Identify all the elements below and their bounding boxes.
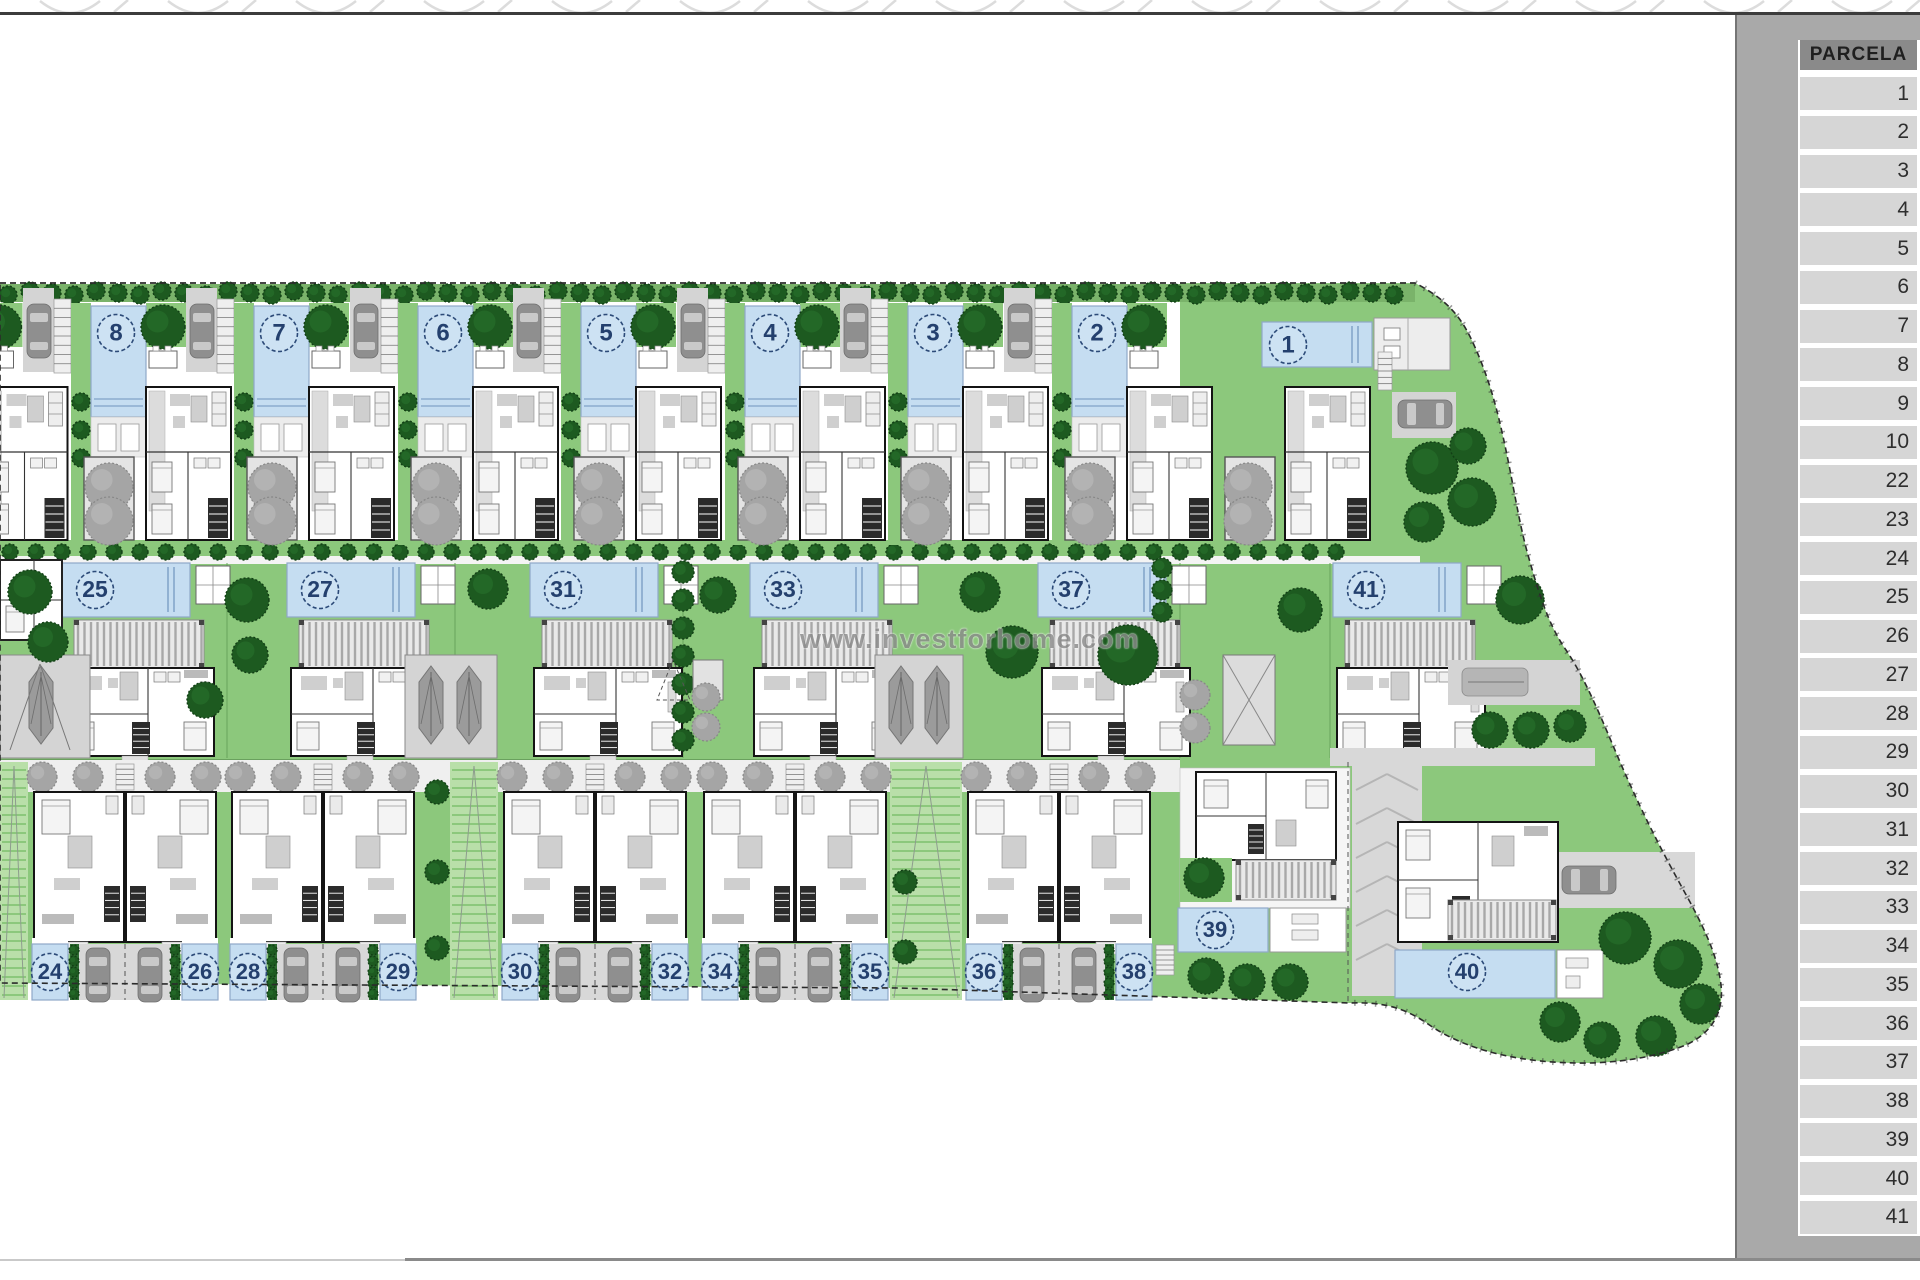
- tree-icon: [840, 945, 850, 955]
- tree-icon: [539, 967, 549, 977]
- parcela-row[interactable]: 30: [1800, 775, 1917, 808]
- tree-icon: [439, 284, 457, 302]
- tree-icon: [879, 282, 897, 300]
- villa-number-label: 33: [770, 576, 796, 602]
- parcela-row[interactable]: 6: [1800, 271, 1917, 304]
- tree-icon: [1341, 282, 1359, 300]
- parcela-row[interactable]: 23: [1800, 503, 1917, 536]
- tree-icon: [1152, 558, 1172, 578]
- tree-icon: [72, 421, 90, 439]
- stairs-icon: [1378, 352, 1392, 390]
- parcela-row[interactable]: 32: [1800, 852, 1917, 885]
- gray-tree-icon: [225, 762, 255, 792]
- boat-trailer-icon: [889, 666, 913, 744]
- car-icon: [808, 948, 832, 1002]
- tree-icon: [1680, 984, 1720, 1024]
- villa-number-label: 1: [1281, 331, 1294, 358]
- tree-icon: [672, 617, 694, 639]
- gray-tree-icon: [861, 762, 891, 792]
- tree-icon: [1275, 282, 1293, 300]
- parcela-row[interactable]: 22: [1800, 465, 1917, 498]
- parcela-row[interactable]: 41: [1800, 1201, 1917, 1234]
- tree-icon: [615, 282, 633, 300]
- tree-icon: [263, 286, 281, 304]
- gray-tree-icon: [1180, 713, 1210, 743]
- tree-icon: [938, 544, 954, 560]
- parcela-row[interactable]: 39: [1800, 1123, 1917, 1156]
- duplex-floorplan: [504, 792, 686, 942]
- tree-icon: [1654, 940, 1702, 988]
- villa-number-label: 36: [972, 959, 996, 984]
- tree-icon: [549, 282, 567, 300]
- tree-icon: [1187, 286, 1205, 304]
- tree-icon: [1363, 284, 1381, 302]
- parcela-row[interactable]: 24: [1800, 542, 1917, 575]
- watermark-text: www.investforhome.com: [800, 624, 1120, 655]
- car-icon: [1562, 866, 1616, 894]
- villa-number-label: 32: [658, 959, 682, 984]
- tree-icon: [1540, 1002, 1580, 1042]
- tree-icon: [153, 282, 171, 300]
- tree-icon: [964, 544, 980, 560]
- pergola-deck: [74, 620, 204, 668]
- parcela-row[interactable]: 3: [1800, 155, 1917, 188]
- car-icon: [27, 304, 51, 358]
- tree-icon: [631, 305, 675, 349]
- villa-number-badge: 4: [752, 315, 789, 352]
- tree-icon: [1448, 478, 1496, 526]
- tree-icon: [132, 544, 148, 560]
- villa-number-badge: 34: [702, 954, 739, 991]
- parcela-row[interactable]: 5: [1800, 232, 1917, 265]
- green-walkway-ramp: [450, 762, 498, 1000]
- tree-icon: [1224, 544, 1240, 560]
- tree-icon: [539, 945, 549, 955]
- duplex-plot: 2829: [225, 762, 419, 1002]
- tree-icon: [232, 637, 268, 673]
- tree-icon: [69, 945, 79, 955]
- tree-icon: [1143, 282, 1161, 300]
- tree-icon: [672, 589, 694, 611]
- car-icon: [284, 948, 308, 1002]
- parcela-header-cell: PARCELA: [1800, 40, 1917, 70]
- gray-tree-icon: [615, 762, 645, 792]
- boat-trailer-icon: [29, 666, 53, 744]
- parcela-row[interactable]: 38: [1800, 1085, 1917, 1118]
- tree-icon: [1016, 544, 1032, 560]
- villa-number-badge: 40: [1449, 954, 1486, 991]
- gray-tree-icon: [743, 762, 773, 792]
- tree-icon: [54, 544, 70, 560]
- tree-icon: [626, 544, 642, 560]
- tree-icon: [1055, 286, 1073, 304]
- tree-icon: [170, 967, 180, 977]
- tree-icon: [399, 421, 417, 439]
- gray-tree-icon: [543, 762, 573, 792]
- duplex-floorplan: [34, 792, 216, 942]
- tree-icon: [1229, 964, 1265, 1000]
- tree-icon: [739, 967, 749, 977]
- page: 8765432125273133374124262829303234353638…: [0, 0, 1920, 1280]
- tree-icon: [1152, 602, 1172, 622]
- gray-tree-icon: [692, 713, 720, 741]
- parcela-panel: PARCELA 12345678910222324252627282930313…: [1735, 13, 1920, 1258]
- tree-icon: [1003, 945, 1013, 955]
- parcela-row[interactable]: 33: [1800, 891, 1917, 924]
- gray-tree-icon: [961, 762, 991, 792]
- tree-icon: [739, 989, 749, 999]
- tree-icon: [496, 544, 512, 560]
- villa-number-badge: 37: [1053, 572, 1090, 609]
- tree-icon: [80, 544, 96, 560]
- tree-icon: [1276, 544, 1292, 560]
- tree-icon: [285, 282, 303, 300]
- house-floorplan: [800, 387, 885, 540]
- villa-number-badge: 27: [302, 572, 339, 609]
- tree-icon: [340, 544, 356, 560]
- tree-icon: [483, 282, 501, 300]
- tree-icon: [640, 967, 650, 977]
- tree-icon: [1472, 712, 1508, 748]
- tree-icon: [392, 544, 408, 560]
- tree-icon: [329, 286, 347, 304]
- gray-tree-icon: [739, 497, 787, 545]
- parcela-row[interactable]: 8: [1800, 348, 1917, 381]
- tree-icon: [1554, 710, 1586, 742]
- tree-icon: [399, 393, 417, 411]
- tree-icon: [539, 956, 549, 966]
- tree-icon: [1003, 967, 1013, 977]
- tree-icon: [418, 544, 434, 560]
- tree-icon: [889, 393, 907, 411]
- villa-number-badge: 33: [765, 572, 802, 609]
- tree-icon: [235, 393, 253, 411]
- parcela-row[interactable]: 26: [1800, 620, 1917, 653]
- parcela-row[interactable]: 29: [1800, 736, 1917, 769]
- gray-tree-icon: [191, 762, 221, 792]
- tree-icon: [288, 544, 304, 560]
- tree-icon: [672, 729, 694, 751]
- villa-number-badge: 8: [98, 315, 135, 352]
- tree-icon: [158, 544, 174, 560]
- tree-icon: [967, 284, 985, 302]
- villa-number-label: 4: [763, 319, 777, 346]
- tree-icon: [1053, 393, 1071, 411]
- stairs-icon: [786, 764, 804, 790]
- tree-icon: [8, 570, 52, 614]
- tree-icon: [267, 956, 277, 966]
- gray-tree-icon: [661, 762, 691, 792]
- tree-icon: [267, 989, 277, 999]
- gray-tree-icon: [1066, 497, 1114, 545]
- villa-number-badge: 25: [77, 572, 114, 609]
- gray-tree-icon: [389, 762, 419, 792]
- tree-icon: [1250, 544, 1266, 560]
- car-icon: [190, 304, 214, 358]
- house-floorplan: [1127, 387, 1212, 540]
- tree-icon: [1231, 284, 1249, 302]
- parcela-row[interactable]: 36: [1800, 1007, 1917, 1040]
- duplex-plot: 3638: [961, 762, 1155, 1002]
- villa-number-badge: 35: [852, 954, 889, 991]
- tree-icon: [1198, 544, 1214, 560]
- gray-tree-icon: [815, 762, 845, 792]
- tree-icon: [901, 284, 919, 302]
- tree-icon: [840, 989, 850, 999]
- gray-tree-icon: [343, 762, 373, 792]
- tree-icon: [368, 978, 378, 988]
- gray-tree-icon: [497, 762, 527, 792]
- boat-trailer-icon: [925, 666, 949, 744]
- tree-icon: [1152, 580, 1172, 600]
- tree-icon: [1104, 945, 1114, 955]
- tree-icon: [1165, 284, 1183, 302]
- tree-icon: [840, 978, 850, 988]
- villa-number-label: 26: [188, 959, 212, 984]
- villa-number-label: 8: [109, 319, 122, 346]
- tree-icon: [170, 945, 180, 955]
- tree-icon: [1328, 544, 1344, 560]
- tree-icon: [444, 544, 460, 560]
- tree-icon: [1302, 544, 1318, 560]
- tree-icon: [548, 544, 564, 560]
- tree-icon: [219, 282, 237, 300]
- tree-icon: [945, 282, 963, 300]
- villa-number-label: 5: [599, 319, 612, 346]
- duplex-plot: 3435: [697, 762, 891, 1002]
- tree-icon: [1099, 284, 1117, 302]
- tree-icon: [571, 284, 589, 302]
- car-icon: [336, 948, 360, 1002]
- gray-tree-icon: [1125, 762, 1155, 792]
- stairs-icon: [54, 299, 71, 373]
- parcela-row[interactable]: 7: [1800, 310, 1917, 343]
- gray-tree-icon: [1180, 680, 1210, 710]
- parcela-row[interactable]: 40: [1800, 1162, 1917, 1195]
- villa-number-badge: 1: [1270, 327, 1307, 364]
- gray-tree-icon: [27, 762, 57, 792]
- stairs-icon: [381, 299, 398, 373]
- villa-number-label: 2: [1090, 319, 1103, 346]
- tree-icon: [834, 544, 850, 560]
- pergola-deck: [1448, 900, 1556, 940]
- tree-icon: [672, 645, 694, 667]
- stairs-icon: [1156, 945, 1174, 975]
- tree-icon: [795, 305, 839, 349]
- car-icon: [138, 948, 162, 1002]
- tree-icon: [1077, 282, 1095, 300]
- gray-tree-icon: [1224, 497, 1272, 545]
- tree-icon: [2, 544, 18, 560]
- villa-number-label: 24: [38, 959, 63, 984]
- tree-icon: [912, 544, 928, 560]
- tree-icon: [106, 544, 122, 560]
- car-icon: [681, 304, 705, 358]
- parcela-row[interactable]: 31: [1800, 813, 1917, 846]
- villa-number-badge: 32: [652, 954, 689, 991]
- tree-icon: [1188, 958, 1224, 994]
- car-icon: [1020, 948, 1044, 1002]
- parcela-row[interactable]: 34: [1800, 930, 1917, 963]
- gray-tree-icon: [697, 762, 727, 792]
- pergola-deck: [542, 620, 672, 668]
- parcela-row[interactable]: 35: [1800, 968, 1917, 1001]
- stairs-icon: [116, 764, 134, 790]
- tree-icon: [889, 421, 907, 439]
- tree-icon: [704, 544, 720, 560]
- tree-icon: [562, 393, 580, 411]
- parcela-row[interactable]: 27: [1800, 658, 1917, 691]
- tree-icon: [131, 286, 149, 304]
- tree-icon: [725, 286, 743, 304]
- tree-icon: [109, 284, 127, 302]
- villa-number-label: 35: [858, 959, 882, 984]
- villa-number-badge: 3: [915, 315, 952, 352]
- villa-number-badge: 5: [588, 315, 625, 352]
- parcela-row[interactable]: 10: [1800, 426, 1917, 459]
- villa-number-badge: 38: [1116, 954, 1153, 991]
- house-floorplan: [1196, 772, 1336, 860]
- tree-icon: [1003, 978, 1013, 988]
- car-icon: [517, 304, 541, 358]
- stairs-icon: [544, 299, 561, 373]
- villa-number-label: 34: [708, 959, 733, 984]
- tree-icon: [893, 940, 917, 964]
- house-floorplan: [963, 387, 1048, 540]
- tree-icon: [1172, 544, 1188, 560]
- gray-tree-icon: [248, 497, 296, 545]
- parcela-row[interactable]: 9: [1800, 387, 1917, 420]
- tree-icon: [1584, 1022, 1620, 1058]
- villa-number-label: 3: [926, 319, 939, 346]
- plan-top-border: [0, 12, 1920, 15]
- villa-number-label: 30: [508, 959, 532, 984]
- villa-number-label: 28: [236, 959, 260, 984]
- villa-number-label: 41: [1353, 576, 1379, 602]
- house-floorplan: [1285, 387, 1370, 540]
- tree-icon: [1272, 964, 1308, 1000]
- tree-icon: [769, 284, 787, 302]
- tree-icon: [368, 967, 378, 977]
- tree-icon: [672, 701, 694, 723]
- tree-icon: [960, 572, 1000, 612]
- gray-tree-icon: [85, 497, 133, 545]
- tree-icon: [304, 305, 348, 349]
- tree-icon: [184, 544, 200, 560]
- tree-icon: [1404, 502, 1444, 542]
- tree-icon: [1003, 989, 1013, 999]
- tree-icon: [659, 286, 677, 304]
- parcela-row[interactable]: 2: [1800, 116, 1917, 149]
- tree-icon: [417, 282, 435, 300]
- tree-icon: [562, 421, 580, 439]
- tree-icon: [1042, 544, 1058, 560]
- tree-icon: [574, 544, 590, 560]
- gray-tree-icon: [145, 762, 175, 792]
- stairs-icon: [1050, 764, 1068, 790]
- tree-icon: [923, 286, 941, 304]
- tree-icon: [461, 286, 479, 304]
- tree-icon: [425, 936, 449, 960]
- tree-icon: [267, 978, 277, 988]
- tree-icon: [210, 544, 226, 560]
- villa-number-label: 39: [1203, 917, 1227, 942]
- tree-icon: [678, 544, 694, 560]
- tree-icon: [28, 544, 44, 560]
- gray-tree-icon: [412, 497, 460, 545]
- gray-tree-icon: [902, 497, 950, 545]
- tree-icon: [307, 284, 325, 302]
- car-icon: [844, 304, 868, 358]
- tree-icon: [652, 544, 668, 560]
- tree-icon: [1209, 282, 1227, 300]
- gray-tree-icon: [271, 762, 301, 792]
- villa-number-label: 31: [550, 576, 576, 602]
- parcela-row[interactable]: 25: [1800, 581, 1917, 614]
- tree-icon: [958, 305, 1002, 349]
- parcela-row[interactable]: 1: [1800, 77, 1917, 110]
- tree-icon: [990, 544, 1006, 560]
- parcela-row[interactable]: 28: [1800, 697, 1917, 730]
- tree-icon: [87, 282, 105, 300]
- tree-icon: [600, 544, 616, 560]
- gray-tree-icon: [73, 762, 103, 792]
- parcela-row[interactable]: 37: [1800, 1046, 1917, 1079]
- tree-icon: [69, 956, 79, 966]
- tree-icon: [170, 989, 180, 999]
- duplex-plot: 2426: [27, 762, 221, 1002]
- tree-icon: [1184, 858, 1224, 898]
- villa-number-label: 27: [307, 576, 333, 602]
- parcela-row[interactable]: 4: [1800, 193, 1917, 226]
- gray-tree-icon: [1007, 762, 1037, 792]
- tree-icon: [170, 956, 180, 966]
- tree-icon: [69, 989, 79, 999]
- tree-icon: [726, 393, 744, 411]
- tree-icon: [1599, 912, 1651, 964]
- villa-number-label: 6: [436, 319, 449, 346]
- car-icon: [556, 948, 580, 1002]
- car-icon: [86, 948, 110, 1002]
- tree-icon: [539, 989, 549, 999]
- house-floorplan: [146, 387, 231, 540]
- tree-icon: [1278, 588, 1322, 632]
- tree-icon: [267, 967, 277, 977]
- tree-icon: [700, 577, 736, 613]
- tree-icon: [1121, 286, 1139, 304]
- tree-icon: [368, 989, 378, 999]
- tree-icon: [1297, 284, 1315, 302]
- tree-icon: [726, 421, 744, 439]
- tree-icon: [1120, 544, 1136, 560]
- car-icon: [608, 948, 632, 1002]
- tree-icon: [225, 578, 269, 622]
- pergola-deck: [1236, 860, 1336, 900]
- villa-number-badge: 24: [32, 954, 69, 991]
- tree-icon: [1003, 956, 1013, 966]
- tree-icon: [368, 945, 378, 955]
- villa-number-label: 40: [1455, 959, 1479, 984]
- tree-icon: [672, 561, 694, 583]
- tree-icon: [187, 682, 223, 718]
- villa-number-label: 37: [1058, 576, 1084, 602]
- stairs-icon: [314, 764, 332, 790]
- tree-icon: [522, 544, 538, 560]
- villa-number-badge: 6: [425, 315, 462, 352]
- tree-icon: [1094, 544, 1110, 560]
- car-icon: [1008, 304, 1032, 358]
- duplex-plot: 3032: [497, 762, 691, 1002]
